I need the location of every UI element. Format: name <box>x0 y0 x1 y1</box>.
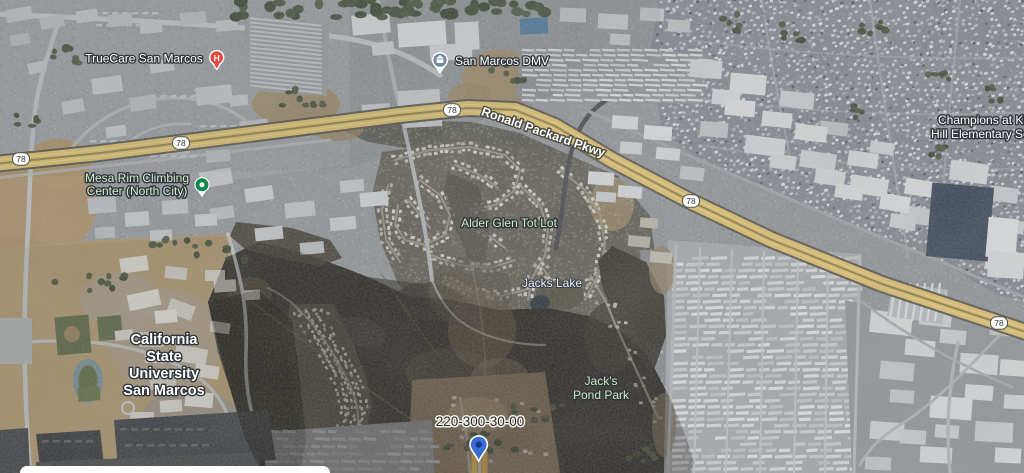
svg-text:78: 78 <box>447 105 457 115</box>
svg-text:78: 78 <box>176 138 186 148</box>
svg-text:H: H <box>214 53 220 63</box>
svg-text:78: 78 <box>16 154 26 164</box>
svg-text:Center (North City): Center (North City) <box>87 184 188 198</box>
svg-text:TrueCare San Marcos: TrueCare San Marcos <box>85 52 203 66</box>
svg-text:State: State <box>146 349 181 365</box>
svg-text:Mesa Rim Climbing: Mesa Rim Climbing <box>85 171 189 185</box>
svg-text:78: 78 <box>686 196 696 206</box>
svg-text:220-300-30-00: 220-300-30-00 <box>436 414 525 429</box>
svg-text:Jack's: Jack's <box>585 374 618 388</box>
svg-text:Alder Glen Tot Lot: Alder Glen Tot Lot <box>461 216 558 230</box>
svg-text:University: University <box>129 366 199 382</box>
svg-text:San Marcos: San Marcos <box>123 383 204 399</box>
svg-text:Pond Park: Pond Park <box>573 388 630 402</box>
svg-text:California: California <box>131 332 199 348</box>
svg-text:Hill Elementary Sc: Hill Elementary Sc <box>931 127 1024 141</box>
svg-text:Jacks Lake: Jacks Lake <box>522 276 582 290</box>
svg-text:Champions at Kn: Champions at Kn <box>938 113 1024 127</box>
svg-text:San Marcos DMV: San Marcos DMV <box>455 54 549 68</box>
svg-text:78: 78 <box>994 318 1004 328</box>
